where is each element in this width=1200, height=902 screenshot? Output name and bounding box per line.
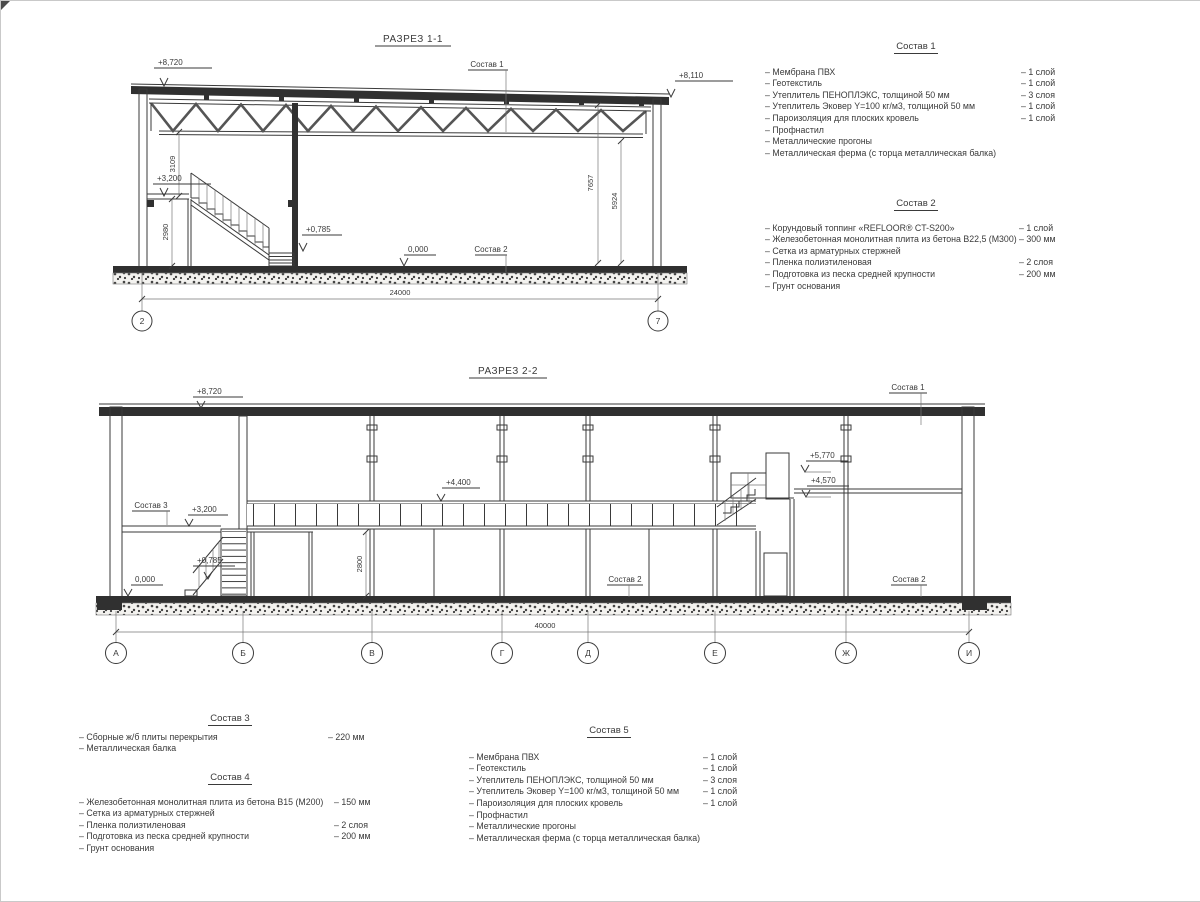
axis-label: 7 [656, 316, 661, 326]
dim-24000: 24000 [390, 288, 411, 297]
composition-item: – Утеплитель Эковер Y=100 кг/м3, толщино… [469, 786, 749, 798]
dim-2800: 2800 [355, 556, 364, 573]
composition-item: – Металлические прогоны [469, 821, 749, 833]
sostav-2-title: Состав 2 [765, 198, 1067, 210]
floor-base [96, 603, 1011, 615]
composition-item: – Геотекстиль – 1 слой [765, 78, 1067, 90]
composition-item: – Подготовка из песка средней крупности … [79, 831, 381, 843]
dim-40000: 40000 [535, 621, 556, 630]
floor-base [113, 273, 687, 284]
composition-item: – Утеплитель ПЕНОПЛЭКС, толщиной 50 мм –… [469, 775, 749, 787]
elevation-mark: +4,400 [446, 478, 471, 487]
composition-item: – Пароизоляция для плоских кровель – 1 с… [469, 798, 749, 810]
composition-item: – Профнастил [469, 810, 749, 822]
sostav-5-items: – Мембрана ПВХ – 1 слой – Геотекстиль – … [469, 752, 749, 845]
section-2-2-drawing: РАЗРЕЗ 2-2 +8,720 Состав 1 Состав 3 +3,2… [86, 361, 1036, 681]
composition-item: – Грунт основания [765, 281, 1067, 293]
composition-item: – Сборные ж/б плиты перекрытия – 220 мм [79, 732, 381, 744]
sostav2-label: Состав 2 [608, 575, 642, 584]
sostav1-label: Состав 1 [891, 383, 925, 392]
composition-item: – Металлические прогоны [765, 136, 1067, 148]
building-structure-2-2 [96, 404, 1011, 615]
right-wall [653, 99, 661, 273]
elevation-mark: +8,110 [679, 71, 704, 80]
elevation-mark: 0,000 [408, 245, 429, 254]
axis-label: А [113, 648, 119, 658]
sostav-3-block: Состав 3 – Сборные ж/б плиты перекрытия … [79, 713, 381, 755]
footing-right [962, 596, 987, 610]
axis-label: Б [240, 648, 246, 658]
elevation-mark: +4,570 [811, 476, 836, 485]
axis-label: 2 [140, 316, 145, 326]
composition-item: – Сетка из арматурных стержней [765, 246, 1067, 258]
elevation-mark: +3,200 [157, 174, 182, 183]
middle-column [292, 103, 298, 266]
section-title: РАЗРЕЗ 1-1 [383, 34, 443, 45]
dim-2980: 2980 [161, 224, 170, 241]
sostav-4-title: Состав 4 [79, 772, 381, 784]
composition-item: – Мембрана ПВХ – 1 слой [765, 67, 1067, 79]
staircase [191, 173, 294, 266]
sostav-1-block: Состав 1 – Мембрана ПВХ – 1 слой – Геоте… [765, 41, 1067, 159]
axis-label: Ж [842, 648, 850, 658]
elevation-mark: +5,770 [810, 451, 835, 460]
walkway-deck [247, 501, 756, 529]
sostav1-label: Состав 1 [470, 60, 504, 69]
composition-item: – Грунт основания [79, 843, 381, 855]
composition-item: – Пленка полиэтиленовая – 2 слоя [79, 820, 381, 832]
composition-item: – Металлическая балка [79, 743, 381, 755]
elevation-mark: +8,720 [197, 387, 222, 396]
composition-item: – Геотекстиль – 1 слой [469, 763, 749, 775]
composition-item: – Утеплитель ПЕНОПЛЭКС, толщиной 50 мм –… [765, 90, 1067, 102]
elevation-mark: +8,720 [158, 58, 183, 67]
dim-5924: 5924 [610, 193, 619, 210]
floor-slab [96, 596, 1011, 603]
axis-label: Д [585, 648, 591, 658]
composition-item: – Металлическая ферма (с торца металличе… [469, 833, 749, 845]
sostav-4-items: – Железобетонная монолитная плита из бет… [79, 797, 381, 855]
beam-section [147, 200, 154, 207]
left-wall [110, 407, 122, 603]
composition-item: – Мембрана ПВХ – 1 слой [469, 752, 749, 764]
sostav-3-title: Состав 3 [79, 713, 381, 725]
annotations-1-1: РАЗРЕЗ 1-1 +8,720 Состав 1 +8,110 3109 +… [132, 34, 733, 331]
composition-item: – Профнастил [765, 125, 1067, 137]
composition-item: – Пароизоляция для плоских кровель – 1 с… [765, 113, 1067, 125]
drawing-sheet: РАЗРЕЗ 1-1 +8,720 Состав 1 +8,110 3109 +… [0, 0, 1200, 902]
axis-label: Е [712, 648, 718, 658]
composition-item: – Корундовый топпинг «REFLOOR® CT-S200» … [765, 223, 1067, 235]
composition-item: – Железобетонная монолитная плита из бет… [765, 234, 1067, 246]
composition-item: – Металлическая ферма (с торца металличе… [765, 148, 1067, 160]
sostav-5-title: Состав 5 [469, 725, 749, 737]
right-wall [962, 407, 974, 603]
composition-item: – Пленка полиэтиленовая – 2 слоя [765, 257, 1067, 269]
sostav2-label: Состав 2 [892, 575, 926, 584]
roof-slab [99, 407, 985, 416]
sostav-2-items: – Корундовый топпинг «REFLOOR® CT-S200» … [765, 223, 1067, 293]
axis-label: В [369, 648, 375, 658]
dim-3109: 3109 [168, 156, 177, 173]
sostav2-label: Состав 2 [474, 245, 508, 254]
stair-wall [239, 416, 247, 529]
sheet-corner-mark [1, 1, 10, 10]
sostav-2-block: Состав 2 – Корундовый топпинг «REFLOOR® … [765, 198, 1067, 292]
axis-label: Г [500, 648, 505, 658]
sostav-4-block: Состав 4 – Железобетонная монолитная пли… [79, 772, 381, 855]
axis-label: И [966, 648, 972, 658]
floor-slab [113, 266, 687, 273]
dim-7657: 7657 [586, 175, 595, 192]
elevation-mark: +0,785 [197, 556, 222, 565]
sostav-1-items: – Мембрана ПВХ – 1 слой – Геотекстиль – … [765, 67, 1067, 160]
left-wall [139, 89, 147, 273]
sostav3-label: Состав 3 [134, 501, 168, 510]
composition-item: – Железобетонная монолитная плита из бет… [79, 797, 381, 809]
composition-item: – Утеплитель Эковер Y=100 кг/м3, толщино… [765, 101, 1067, 113]
sostav-5-block: Состав 5 – Мембрана ПВХ – 1 слой – Геоте… [469, 725, 749, 844]
composition-item: – Сетка из арматурных стержней [79, 808, 381, 820]
elevation-mark: +0,785 [306, 225, 331, 234]
elevation-mark: 0,000 [135, 575, 156, 584]
sostav-1-title: Состав 1 [765, 41, 1067, 53]
composition-item: – Подготовка из песка средней крупности … [765, 269, 1067, 281]
elevation-mark: +3,200 [192, 505, 217, 514]
footing-left [97, 596, 122, 610]
sostav-3-items: – Сборные ж/б плиты перекрытия – 220 мм … [79, 732, 381, 755]
section-1-1-drawing: РАЗРЕЗ 1-1 +8,720 Состав 1 +8,110 3109 +… [86, 26, 776, 346]
section-title: РАЗРЕЗ 2-2 [478, 366, 538, 377]
beam-section [288, 200, 298, 207]
